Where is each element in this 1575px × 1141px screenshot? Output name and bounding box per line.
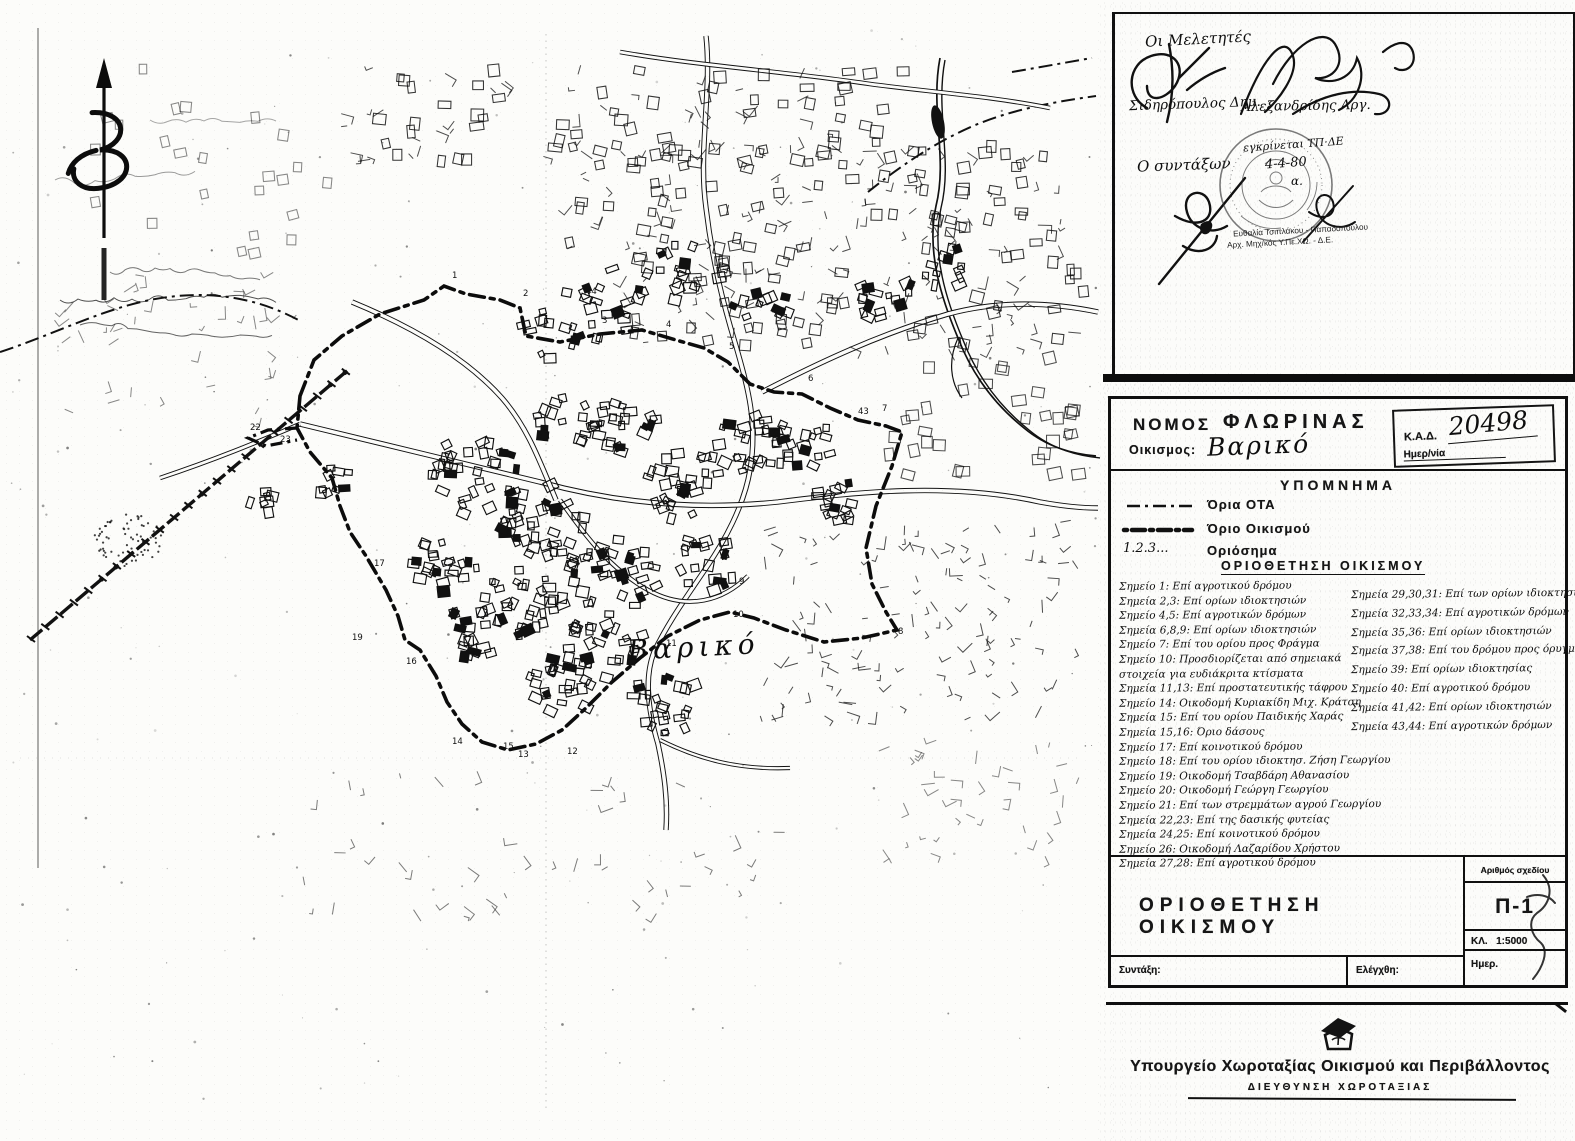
approval-panel: Οι Μελετητές Σιδηρόπουλος Δημ. Αλεξανδρί… [1112,12,1575,376]
boundary-marker-number: 9 [739,577,744,587]
legend-symbol-markers: 1.2.3... [1123,541,1168,556]
checked-cell: Ελέγχθη: [1348,955,1463,985]
delimitation-heading: ΟΡΙΟΘΕΤΗΣΗ ΟΙΚΙΣΜΟΥ [1221,559,1425,575]
scanned-map-sheet: 12345678910111213141516171922234344Βαρικ… [0,0,1575,1141]
note-line: Σημείο 1: Επί αγροτικού δρόμου [1119,578,1351,594]
map-noise-layer [11,29,1097,1100]
date-cell: Ημερ. [1465,951,1565,979]
date-label: Ημερ/νία [1403,446,1505,462]
scale-value: 1:5000 [1496,936,1527,947]
boundary-marker-number: 12 [567,747,578,757]
boundary-marker-number: 7 [882,404,887,414]
labels-layer: Βαρικό [626,627,761,667]
boundary-marker-number: 15 [503,742,514,752]
legend-label-ota: Όρια ΟΤΑ [1207,497,1275,512]
boundary-marker-number: 44 [586,287,597,297]
hatched-road-layer [27,369,350,642]
boundary-marker-number: 10 [733,610,744,620]
note-line: Σημεία 11,13: Επί προστατευτικής τάφρου [1119,680,1351,696]
boundary-marker-number: 43 [858,407,869,417]
legend-symbol-ota [1125,499,1195,517]
boundary-marker-number: 3 [602,316,607,326]
checked-label: Ελέγχθη: [1356,965,1399,976]
settlement-map-label: Βαρικό [626,627,761,667]
titleblock-title: ΟΡΙΟΘΕΤΗΣΗ ΟΙΚΙΣΜΟΥ [1139,895,1463,939]
boundary-marker-number: 23 [280,435,291,445]
notes-right-column: Σημεία 29,30,31: Επί των ορίων ιδιοκτησι… [1351,585,1565,735]
note-line: Σημεία 15: Επί του ορίου Παιδικής Χαράς [1119,710,1351,726]
footer-rule-bottom [1188,1097,1516,1101]
note-line: Σημείο 40: Επί αγροτικού δρόμου [1351,678,1565,699]
drawing-number-label: Αριθμός σχεδίου [1481,865,1550,875]
signature-1 [1117,38,1247,130]
stamp-note-3: α. [1291,174,1303,188]
notes-left-column: Σημείο 1: Επί αγροτικού δρόμουΣημεία 2,3… [1119,579,1351,871]
boundary-marker-number: 14 [452,737,463,747]
prefecture-label: ΝΟΜΟΣ [1133,415,1211,435]
boundary-marker-number: 19 [352,633,363,643]
boundary-marker-number: 1 [452,271,457,281]
note-line: Σημείο 7: Επί του ορίου προς Φράγμα [1119,637,1351,653]
legend-label-markers: Οριόσημα [1207,543,1278,558]
title-panel: ΝΟΜΟΣ ΦΛΩΡΙΝΑΣ Οικισμος: Βαρικό Κ.Α.Δ. 2… [1108,396,1568,988]
boundary-marker-number: 16 [406,657,417,667]
note-line: Σημείο 20: Οικοδομή Γεώργη Γεωργίου [1119,783,1351,799]
legend-symbol-settlement [1121,523,1195,541]
legend-title: ΥΠΟΜΝΗΜΑ [1111,477,1565,493]
river-layer [929,58,1100,458]
note-line: Σημείο 10: Προσδιορίζεται από σημειακά [1119,651,1351,667]
note-line: Σημεία 43,44: Επί αγροτικών δρόμων [1351,715,1565,736]
drawing-number: Π-1 [1495,895,1535,918]
note-line: Σημεία 32,33,34: Επί αγροτικών δρόμων [1351,603,1565,624]
designers-title: Οι Μελετητές [1145,27,1252,51]
boundary-marker-number: 6 [808,374,813,384]
prepared-label: Συντάξη: [1119,965,1161,976]
ministry-name: Υπουργείο Χωροταξίας Οικισμού και Περιβά… [1105,1058,1575,1076]
kad-value: 20498 [1445,405,1537,445]
note-line: Σημείο 21: Επί των στρεμμάτων αγρού Γεωρ… [1119,797,1351,813]
settlement-map: 12345678910111213141516171922234344Βαρικ… [0,0,1100,1141]
north-arrow [62,58,128,300]
header-row: ΝΟΜΟΣ ΦΛΩΡΙΝΑΣ Οικισμος: Βαρικό Κ.Α.Δ. 2… [1111,399,1565,471]
note-line: Σημεία 24,25: Επί κοινοτικού δρόμου [1119,826,1351,842]
boundary-marker-number: 5 [729,342,734,352]
boundary-marker-number: 4 [666,320,671,330]
sheet-marks-layer [20,28,1080,1110]
titleblock-right-column: Αριθμός σχεδίου Π-1 ΚΛ. 1:5000 Ημερ. [1463,855,1565,985]
scale-cell: ΚΛ. 1:5000 [1465,931,1565,951]
directorate-name: ΔΙΕΥΘΥΝΣΗ ΧΩΡΟΤΑΞΙΑΣ [1105,1082,1575,1093]
note-line: Σημείο 39: Επί ορίων ιδιοκτησίας [1351,659,1565,680]
boundary-marker-number: 2 [523,289,528,299]
ministry-logo [1315,1014,1361,1056]
note-line: Σημεία 29,30,31: Επί των ορίων ιδιοκτησι… [1351,584,1565,605]
north-letter [62,110,128,192]
note-line: Σημεία 41,42: Επί ορίων ιδιοκτησιών [1351,697,1565,718]
boundary-marker-number: 22 [250,423,261,433]
kad-label: Κ.Α.Δ. [1404,430,1437,443]
stamp-note-2: 4-4-80 [1265,155,1308,173]
boundary-marker-number: 13 [518,750,529,760]
drawing-number-label-cell: Αριθμός σχεδίου [1465,857,1565,883]
boundary-marker-number: 8 [898,627,903,637]
settlement-value: Βαρικό [1207,429,1311,462]
note-line: Σημεία 37,38: Επί του δρόμου προς όρυγμα [1351,640,1565,661]
titleblock-main-cell: ΟΡΙΟΘΕΤΗΣΗ ΟΙΚΙΣΜΟΥ [1111,855,1463,955]
note-line: Σημείο 18: Επί του ορίου ιδιοκτησ. Ζήση … [1119,753,1351,769]
boundary-marker-number: 17 [374,559,385,569]
drawing-number-cell: Π-1 [1465,883,1565,931]
scale-label: ΚΛ. [1471,936,1488,947]
titleblock-date-label: Ημερ. [1471,959,1498,970]
note-line: Σημείο 4,5: Επί αγροτικών δρόμων [1119,607,1351,623]
legend-label-settlement: Όριο Οικισμού [1207,521,1311,536]
note-line: Σημεία 15,16: Όριο δάσους [1119,724,1351,740]
settlement-label: Οικισμος: [1129,443,1196,457]
panel-divider-band [1103,374,1575,382]
designer-name-2: Αλεξανδρίδης Αργ. [1241,97,1371,115]
prepared-cell: Συντάξη: [1111,955,1348,985]
footer-rule-top [1106,1002,1568,1005]
ota-boundary-layer [0,58,1096,352]
kad-box: Κ.Α.Δ. 20498 Ημερ/νία [1392,404,1556,468]
